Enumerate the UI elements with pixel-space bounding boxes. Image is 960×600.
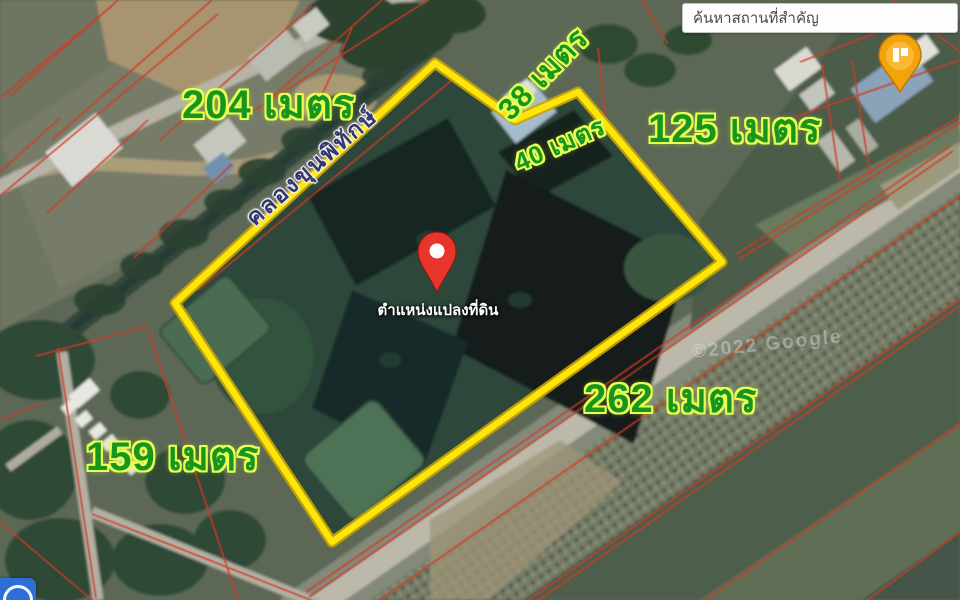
circular-control-icon	[3, 585, 33, 600]
search-input[interactable]	[682, 3, 958, 33]
map-viewport[interactable]: ©2022 Google 204 เมตร 38 เมตร 40 เมตร 12…	[0, 0, 960, 600]
map-control-button[interactable]	[0, 578, 36, 600]
satellite-map-canvas[interactable]	[0, 0, 960, 600]
